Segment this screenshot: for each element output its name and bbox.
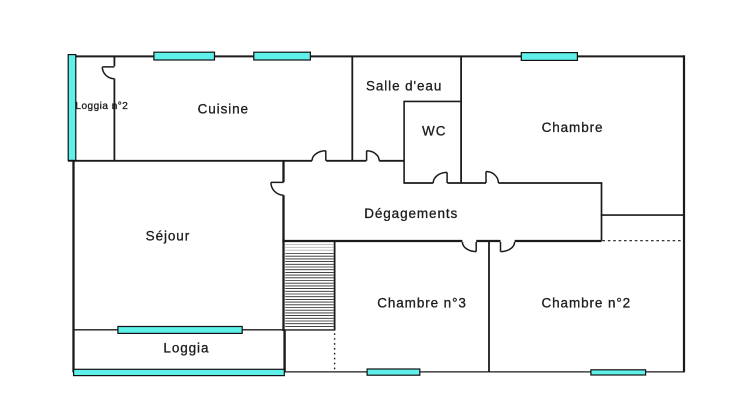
svg-text:Loggia n°2: Loggia n°2 <box>75 101 128 112</box>
svg-text:Cuisine: Cuisine <box>198 101 249 116</box>
svg-text:Chambre n°3: Chambre n°3 <box>377 296 467 311</box>
svg-text:Chambre: Chambre <box>542 120 604 135</box>
svg-text:Dégagements: Dégagements <box>364 206 458 221</box>
svg-text:WC: WC <box>422 124 446 139</box>
svg-text:Salle d'eau: Salle d'eau <box>366 78 442 93</box>
svg-text:Loggia: Loggia <box>163 340 209 355</box>
svg-text:Chambre n°2: Chambre n°2 <box>542 296 632 311</box>
svg-text:Séjour: Séjour <box>146 229 190 244</box>
